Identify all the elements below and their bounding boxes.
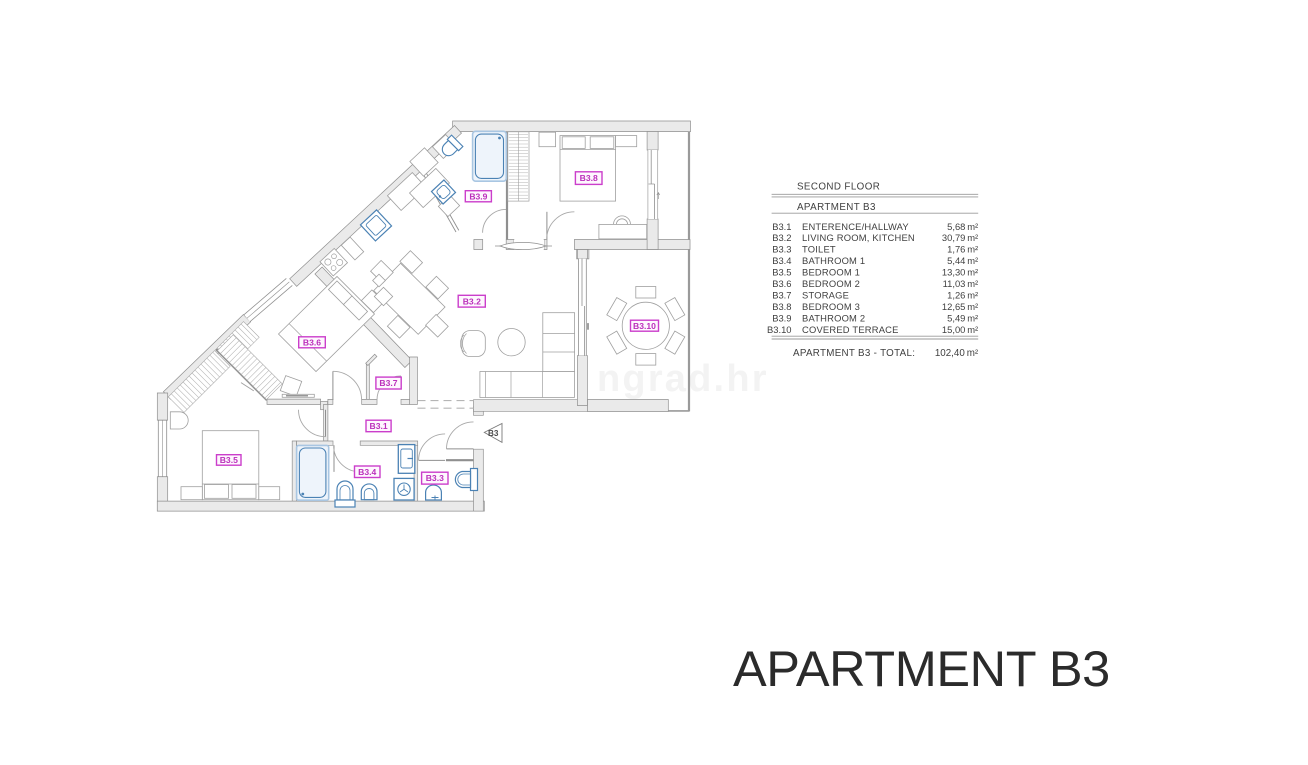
svg-text:B3.8: B3.8	[772, 301, 791, 312]
svg-text:B3.5: B3.5	[772, 267, 791, 278]
svg-text:15,00 m²: 15,00 m²	[942, 324, 978, 335]
svg-text:B3.1: B3.1	[370, 421, 388, 431]
svg-text:B3.3: B3.3	[426, 473, 444, 483]
svg-text:B3.9: B3.9	[772, 312, 791, 323]
svg-text:B3.9: B3.9	[469, 191, 487, 201]
svg-text:TOILET: TOILET	[802, 244, 836, 255]
svg-text:5,49 m²: 5,49 m²	[947, 312, 978, 323]
svg-text:STORAGE: STORAGE	[802, 290, 849, 301]
svg-text:5,68 m²: 5,68 m²	[947, 221, 978, 232]
svg-text:102,40 m²: 102,40 m²	[935, 348, 979, 359]
svg-text:B3: B3	[488, 429, 499, 438]
svg-text:12,65 m²: 12,65 m²	[942, 301, 978, 312]
svg-text:11,03 m²: 11,03 m²	[943, 278, 979, 289]
svg-text:1,76 m²: 1,76 m²	[947, 244, 978, 255]
svg-text:B3.3: B3.3	[772, 244, 791, 255]
svg-text:B3.4: B3.4	[358, 467, 376, 477]
svg-text:B3.4: B3.4	[772, 255, 791, 266]
svg-text:5,44 m²: 5,44 m²	[947, 255, 978, 266]
svg-text:APARTMENT B3 - TOTAL:: APARTMENT B3 - TOTAL:	[793, 348, 915, 359]
svg-text:APARTMENT B3: APARTMENT B3	[797, 202, 876, 213]
svg-text:B3.8: B3.8	[580, 173, 598, 183]
svg-text:BATHROOM 1: BATHROOM 1	[802, 255, 865, 266]
svg-text:ngrad.hr: ngrad.hr	[597, 358, 769, 400]
svg-text:LIVING ROOM, KITCHEN: LIVING ROOM, KITCHEN	[802, 232, 915, 243]
svg-text:B3.7: B3.7	[772, 290, 791, 301]
svg-text:BEDROOM 2: BEDROOM 2	[802, 278, 860, 289]
svg-text:COVERED TERRACE: COVERED TERRACE	[802, 324, 899, 335]
svg-text:B3.10: B3.10	[633, 321, 656, 331]
svg-text:B3.6: B3.6	[303, 337, 321, 347]
svg-text:BEDROOM 1: BEDROOM 1	[802, 267, 860, 278]
svg-text:BATHROOM 2: BATHROOM 2	[802, 312, 865, 323]
svg-text:1,26 m²: 1,26 m²	[947, 290, 978, 301]
svg-text:B3.6: B3.6	[772, 278, 791, 289]
svg-text:B3.1: B3.1	[772, 221, 791, 232]
svg-text:SECOND FLOOR: SECOND FLOOR	[797, 182, 880, 193]
svg-text:B3.2: B3.2	[463, 296, 481, 306]
svg-text:30,79 m²: 30,79 m²	[942, 232, 978, 243]
svg-text:ENTERENCE/HALLWAY: ENTERENCE/HALLWAY	[802, 221, 909, 232]
svg-text:13,30 m²: 13,30 m²	[942, 267, 978, 278]
svg-text:B3.10: B3.10	[767, 324, 792, 335]
svg-text:APARTMENT B3: APARTMENT B3	[733, 640, 1110, 697]
svg-text:B3.5: B3.5	[220, 455, 238, 465]
svg-text:BEDROOM 3: BEDROOM 3	[802, 301, 860, 312]
svg-text:B3.7: B3.7	[379, 378, 397, 388]
svg-text:B3.2: B3.2	[772, 232, 791, 243]
